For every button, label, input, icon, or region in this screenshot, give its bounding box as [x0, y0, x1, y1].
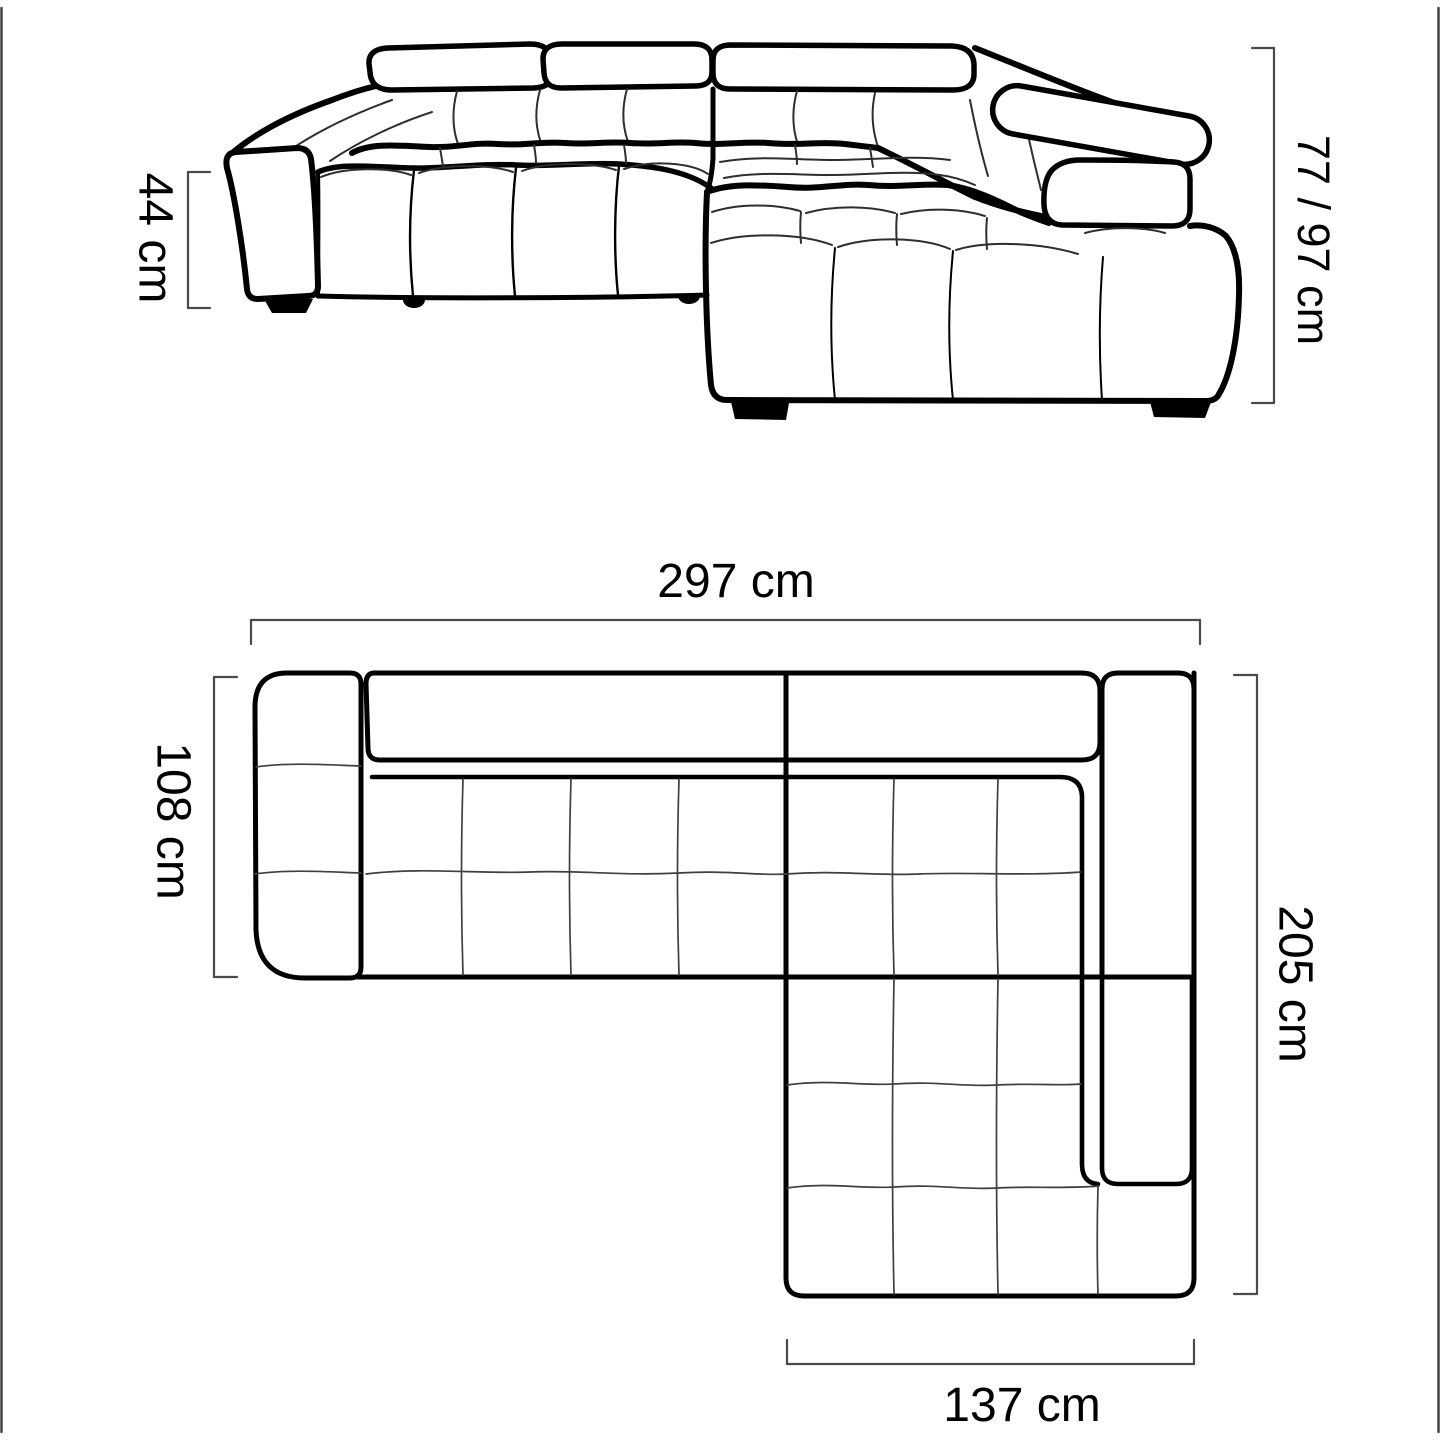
svg-text:205 cm: 205 cm	[1268, 905, 1321, 1062]
svg-text:108 cm: 108 cm	[146, 742, 199, 899]
svg-text:77 / 97 cm: 77 / 97 cm	[1288, 135, 1339, 345]
svg-text:137 cm: 137 cm	[943, 1379, 1100, 1432]
svg-text:44 cm: 44 cm	[128, 173, 181, 304]
svg-text:297 cm: 297 cm	[657, 555, 814, 608]
